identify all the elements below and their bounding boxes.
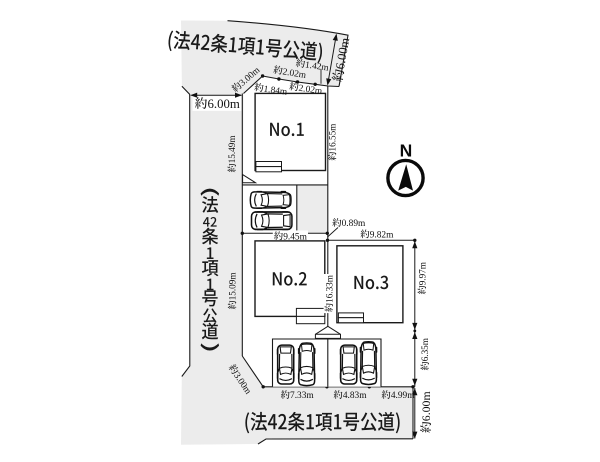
svg-text:7.33m: 7.33m [290, 391, 314, 401]
svg-text:6.00m: 6.00m [419, 391, 433, 421]
svg-text:15.09m: 15.09m [228, 272, 238, 300]
svg-text:4.83m: 4.83m [343, 391, 367, 401]
svg-text:N: N [400, 141, 413, 161]
svg-text:9.82m: 9.82m [370, 230, 394, 240]
svg-text:15.49m: 15.49m [227, 135, 237, 163]
svg-text:9.97m: 9.97m [417, 262, 427, 285]
svg-text:16.33m: 16.33m [324, 275, 334, 303]
svg-text:16.55m: 16.55m [328, 124, 338, 152]
svg-text:6.35m: 6.35m [420, 338, 430, 361]
svg-text:6.00m: 6.00m [208, 97, 240, 111]
svg-text:4.99m: 4.99m [391, 391, 415, 401]
svg-text:0.89m: 0.89m [342, 219, 366, 229]
